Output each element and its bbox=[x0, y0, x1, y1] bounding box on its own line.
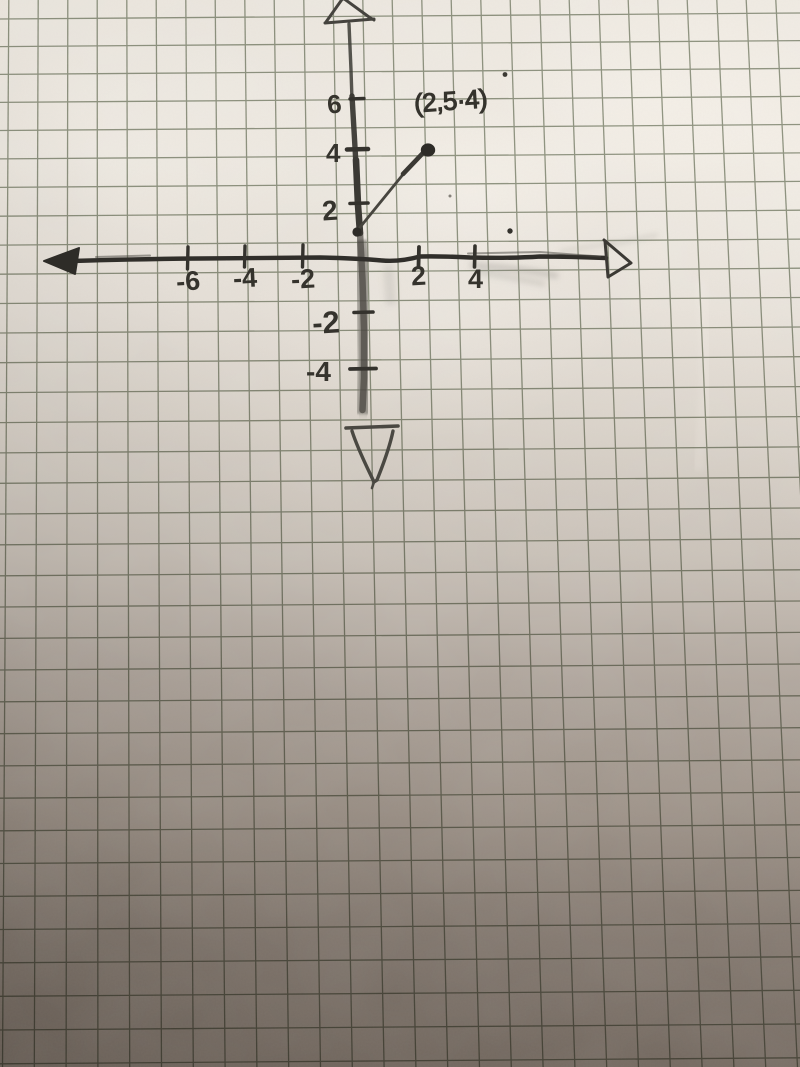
svg-text:-2: -2 bbox=[290, 263, 316, 294]
svg-text:(2,5·4): (2,5·4) bbox=[413, 83, 488, 118]
svg-text:4: 4 bbox=[326, 138, 341, 168]
svg-text:-4: -4 bbox=[232, 262, 258, 293]
svg-text:2: 2 bbox=[321, 195, 339, 227]
svg-text:4: 4 bbox=[468, 264, 483, 294]
svg-text:6: 6 bbox=[326, 88, 343, 119]
svg-text:-2: -2 bbox=[311, 304, 340, 340]
svg-text:-6: -6 bbox=[175, 265, 201, 297]
svg-text:2: 2 bbox=[410, 261, 427, 292]
svg-text:-4: -4 bbox=[306, 356, 331, 387]
